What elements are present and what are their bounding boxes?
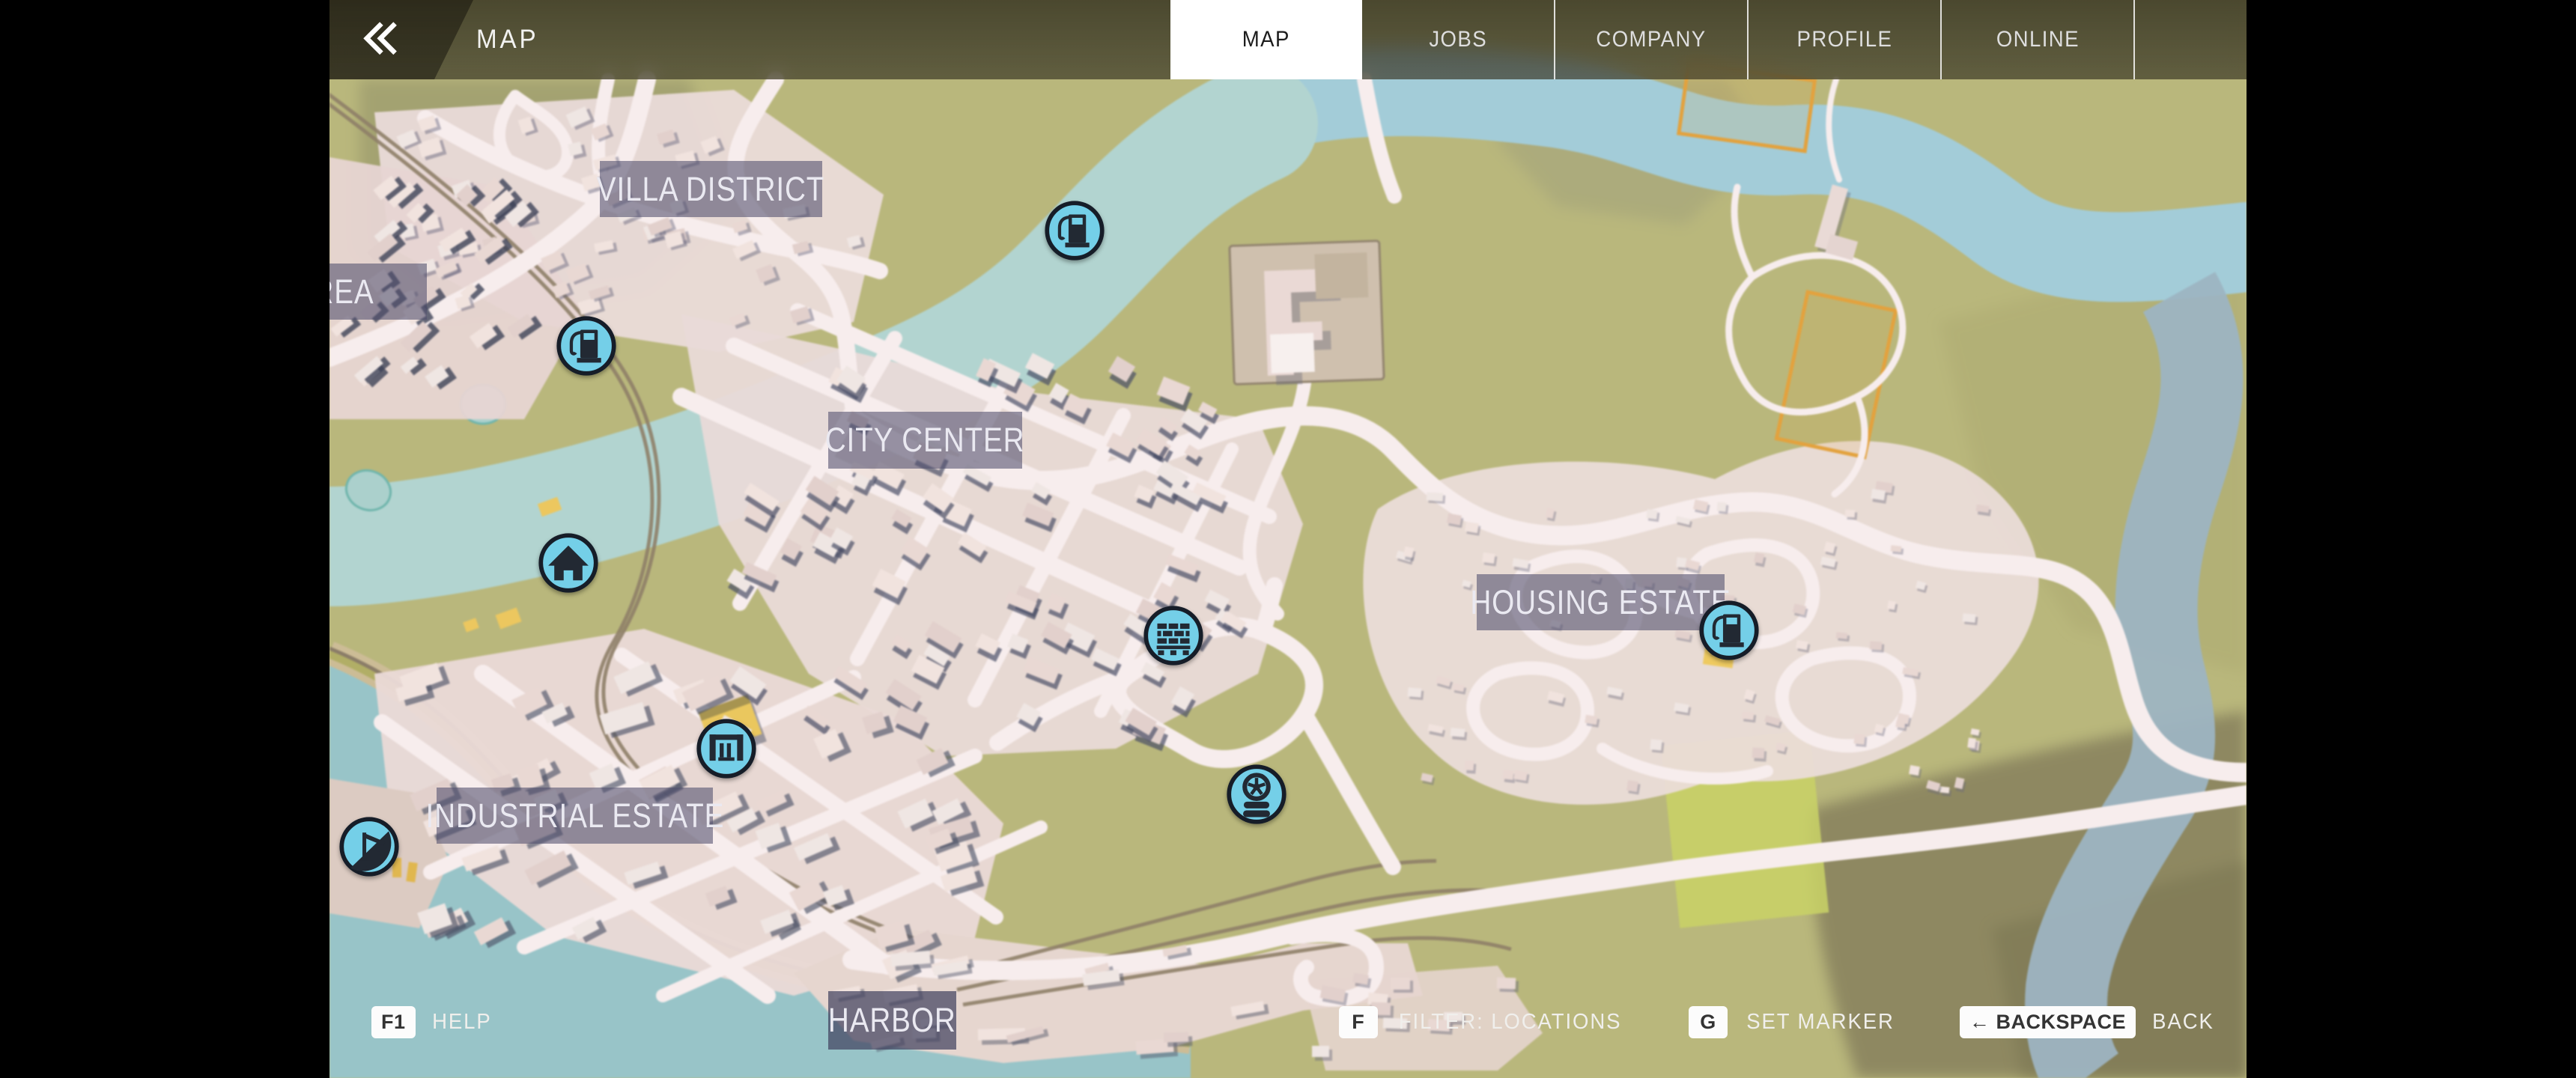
marker-fuel-station-3[interactable] xyxy=(1697,598,1761,663)
marker-fuel-station-1[interactable] xyxy=(1042,198,1107,263)
screen: VILLA DISTRICT L AREA CITY CENTER HOUSIN… xyxy=(0,0,2576,1078)
region-label-housing-estate: HOUSING ESTATE xyxy=(1477,574,1725,630)
tab-bar: MAP JOBS COMPANY PROFILE ONLINE xyxy=(1170,0,2247,79)
tab-profile[interactable]: PROFILE xyxy=(1747,0,1940,79)
region-label-harbor: HARBOR xyxy=(828,991,956,1050)
top-bar: MAP MAP JOBS COMPANY PROFILE ONLINE xyxy=(329,0,2247,79)
tab-bar-filler xyxy=(2133,0,2247,79)
marker-building-materials[interactable] xyxy=(1141,603,1206,668)
marker-home[interactable] xyxy=(536,531,601,595)
tab-company[interactable]: COMPANY xyxy=(1554,0,1747,79)
map-screen[interactable]: VILLA DISTRICT L AREA CITY CENTER HOUSIN… xyxy=(329,0,2247,1078)
back-button[interactable] xyxy=(359,19,401,60)
region-label-villa-district: VILLA DISTRICT xyxy=(600,161,822,217)
tab-jobs[interactable]: JOBS xyxy=(1362,0,1554,79)
back-panel xyxy=(329,0,479,79)
marker-fuel-station-2[interactable] xyxy=(554,314,619,378)
region-label-city-center: CITY CENTER xyxy=(828,412,1022,469)
region-label-area: L AREA xyxy=(329,264,427,320)
tab-map[interactable]: MAP xyxy=(1170,0,1362,79)
marker-tire-shop[interactable] xyxy=(1224,762,1289,826)
page-title: MAP xyxy=(476,0,538,79)
tab-online[interactable]: ONLINE xyxy=(1940,0,2133,79)
region-label-industrial-estate: INDUSTRIAL ESTATE xyxy=(437,788,713,844)
building-materials-icon xyxy=(1157,624,1191,655)
double-chevron-left-icon xyxy=(359,19,401,57)
marker-harbor-crane[interactable] xyxy=(337,814,401,879)
marker-garage[interactable] xyxy=(694,716,759,781)
